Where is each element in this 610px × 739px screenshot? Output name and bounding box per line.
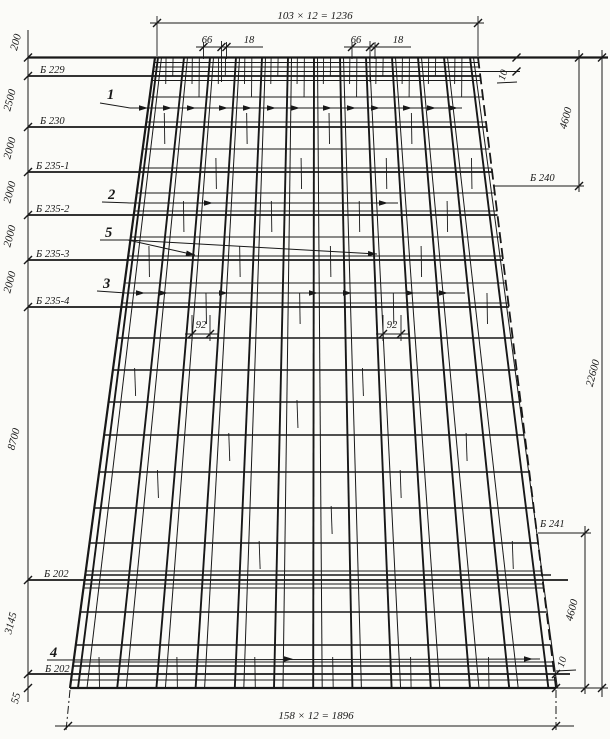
rebar-plan-drawing: 103 × 12 = 1236 66 18 66 18 10 4600 2260…	[0, 0, 610, 739]
callout-1: 1	[107, 87, 114, 103]
linework-layer	[24, 16, 608, 731]
dim-height-total: 22600	[584, 358, 603, 388]
dim-left-200: 200	[8, 32, 24, 52]
callout-5: 5	[105, 225, 112, 241]
beam-label-b202-top: Б 202	[43, 569, 69, 580]
dim-66-a: 66	[202, 35, 213, 46]
dim-66-b: 66	[351, 35, 362, 46]
dim-left-8700: 8700	[5, 427, 22, 452]
dim-bottom-total: 158 × 12 = 1896	[278, 710, 354, 722]
dim-92-b: 92	[387, 320, 398, 331]
dim-left-2000-4: 2000	[1, 270, 18, 295]
beam-label-b235-3: Б 235-3	[35, 249, 69, 260]
dim-92-a: 92	[196, 320, 207, 331]
beam-label-b229: Б 229	[39, 65, 65, 76]
dim-left-2000-1: 2000	[1, 136, 18, 161]
beam-label-b202-bottom: Б 202	[44, 664, 70, 675]
dim-top-total: 103 × 12 = 1236	[277, 10, 353, 22]
dim-right-lower: 4600	[563, 598, 580, 623]
callout-2: 2	[107, 187, 115, 203]
reinforcement-drawing-sheet: 103 × 12 = 1236 66 18 66 18 10 4600 2260…	[0, 0, 610, 739]
label-layer: 103 × 12 = 1236 66 18 66 18 10 4600 2260…	[1, 10, 602, 722]
dim-18-b: 18	[393, 35, 404, 46]
beam-label-b235-1: Б 235-1	[35, 161, 69, 172]
callout-4: 4	[49, 645, 57, 661]
beam-label-b241: Б 241	[539, 519, 565, 530]
beam-label-b235-4: Б 235-4	[35, 296, 70, 307]
beam-label-b230: Б 230	[39, 116, 65, 127]
dim-gap-top-right: 10	[497, 68, 511, 82]
dim-gap-bottom-right: 10	[556, 655, 570, 669]
callout-3: 3	[102, 276, 110, 292]
dim-left-2000-2: 2000	[1, 180, 18, 205]
dim-left-2500: 2500	[1, 88, 18, 113]
beam-label-b235-2: Б 235-2	[35, 204, 70, 215]
dim-left-2000-3: 2000	[1, 224, 18, 249]
beam-label-b240: Б 240	[529, 173, 555, 184]
dim-left-3145: 3145	[2, 611, 20, 637]
dim-18-a: 18	[244, 35, 255, 46]
dim-right-upper: 4600	[557, 106, 574, 131]
dim-left-55: 55	[9, 691, 24, 705]
